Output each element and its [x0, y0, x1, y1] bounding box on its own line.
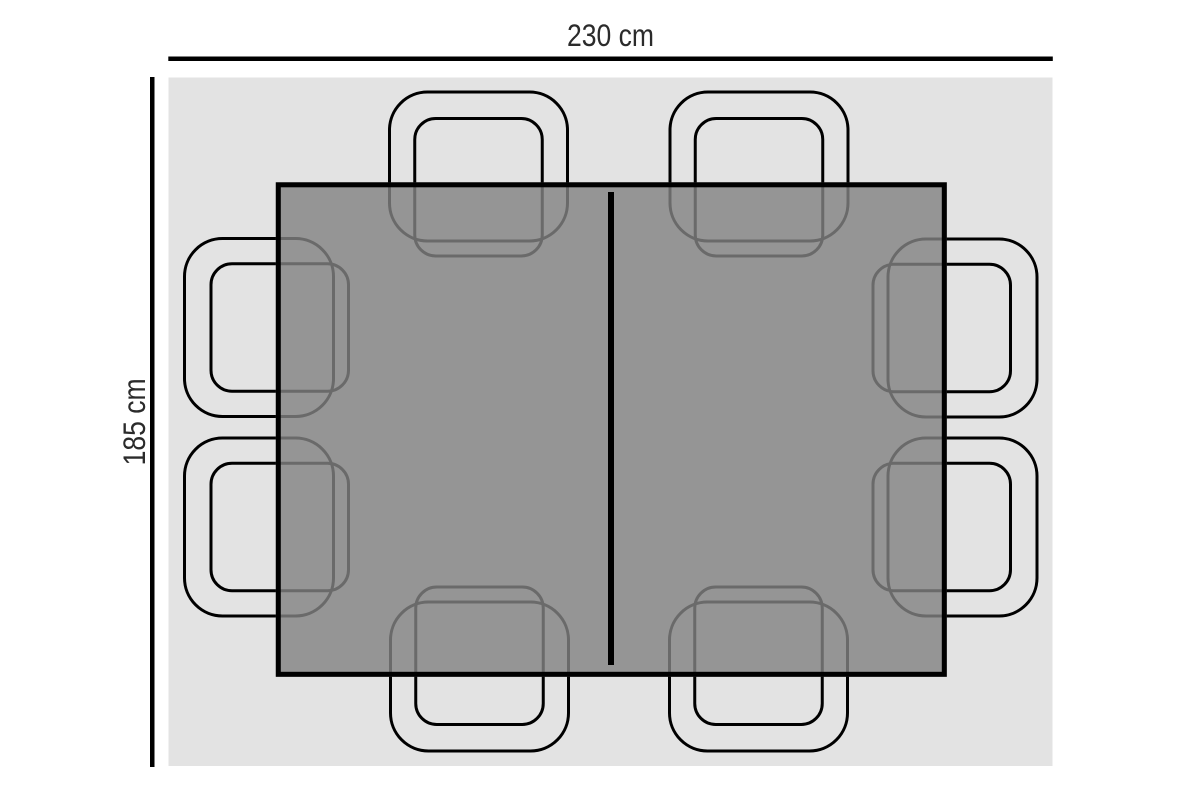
svg-text:230 cm: 230 cm [567, 17, 654, 53]
svg-text:185 cm: 185 cm [116, 378, 152, 465]
